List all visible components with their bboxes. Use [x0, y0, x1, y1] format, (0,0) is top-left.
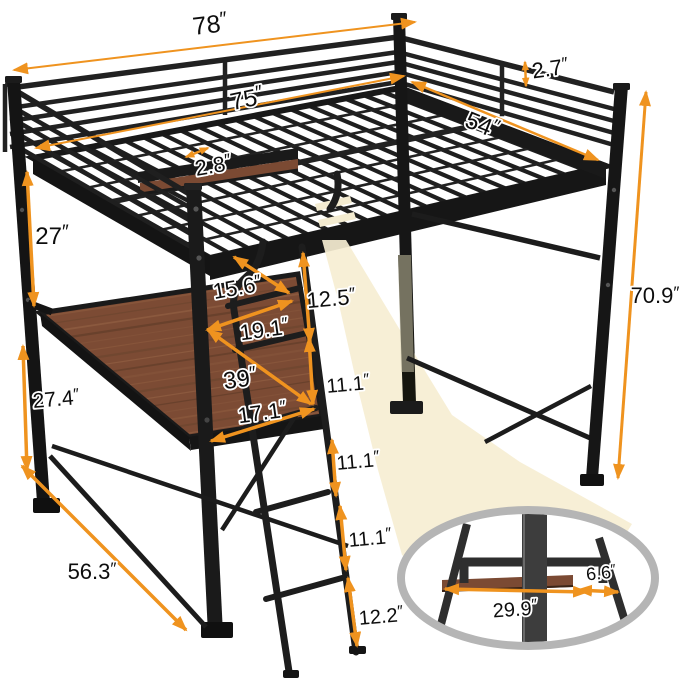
- svg-text:12.2″: 12.2″: [358, 603, 405, 630]
- svg-text:12.5″: 12.5″: [306, 284, 357, 313]
- svg-text:56.3″: 56.3″: [68, 559, 117, 584]
- svg-text:29.9″: 29.9″: [492, 596, 538, 622]
- svg-text:70.9″: 70.9″: [631, 283, 679, 308]
- svg-text:11.1″: 11.1″: [336, 448, 381, 475]
- svg-text:11.1″: 11.1″: [348, 525, 393, 552]
- svg-text:27.4″: 27.4″: [32, 386, 81, 413]
- svg-text:11.1″: 11.1″: [326, 371, 371, 398]
